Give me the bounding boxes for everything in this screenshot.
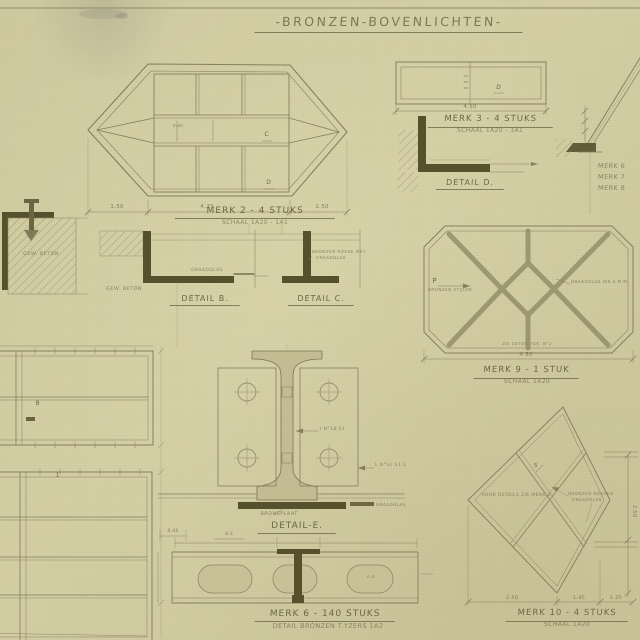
merk10-label: MERK 10 - 4 STUKS [506,609,629,622]
merk3-dim: 4.50 [450,104,490,110]
detail-c-note-2: DRAADGLAS [316,256,360,261]
detail-e-plate-note: BRONSPLAAT [244,512,314,518]
merk6-label: MERK 6 - 140 STUKS [255,609,396,622]
detail-e-label: DETAIL-E. [258,521,337,534]
merk9-scale: SCHAAL 1A20 [488,379,566,386]
merk10-dim-1: 2.50 [497,596,527,602]
detail-c-label: DETAIL C. [288,294,355,306]
merk9-note-bottom: ZIE DETAIL TEK. N°2 [490,342,564,347]
merk2-dim-right: 1.50 [302,204,342,210]
merk6-oblong-note: R.4 [358,575,384,580]
merk2-scale: SCHAAL 1A20 - 1A1 [195,220,315,227]
merk2-mark-c: C [261,132,273,139]
sheet-title: -BRONZEN-BOVENLICHTEN- [255,15,524,33]
merk2-dim-left: 1.50 [97,204,137,210]
detail-e-dim-1: 0.45 [160,529,186,534]
merk10-dim-3: 1.25 [603,596,629,602]
merk10-dim-right: 2.50 [630,505,636,517]
detail-e-dim-2: 4.5 [218,532,240,537]
merk2-mark-d: D [263,180,275,187]
merk2-dim-mid: 4.25 [187,204,227,210]
merk6-tbar-strip [158,538,433,603]
detail-d-label: DETAIL D. [436,178,505,190]
plan-a-mark: B [32,401,44,408]
merk9-label: MERK 9 - 1 STUK [474,366,580,379]
detail-b-note-glas: DRAADGLAS [183,268,231,273]
detail-e-angle-note: L N°51.51.5 [375,463,417,468]
merk2-dim-small: 0.60 [168,124,188,129]
beton-block-section [2,199,88,294]
merk10-note-center: VOOR DETAILS ZIE MERK 2 [476,493,556,498]
merk2-hexagon-plan [85,64,350,216]
corner-note-3: MERK 8 [598,185,640,192]
detail-b-label: DETAIL B. [170,294,241,306]
beton-label: GEW. BETON [12,252,70,258]
merk10-mark: 5 [530,463,542,469]
corner-note-2: MERK 7 [598,174,640,181]
drawing-sheet: -BRONZEN-BOVENLICHTEN- MERK 2 - 4 STUKS … [0,0,640,640]
left-plan-a [0,346,153,448]
merk9-mark: P [429,277,441,285]
detail-e-beam-note: I N°18-51 [320,427,366,432]
plan-b-mark: 1 [52,473,64,480]
detail-b-note-beton: GEW. BETON [100,287,148,293]
left-plan-b [0,346,164,640]
blueprint-linework [0,0,640,640]
merk3-mark: D [493,85,505,92]
merk6-sublabel: DETAIL BRONZEN T.YZERS 1A2 [248,623,408,630]
merk3-scale: SCHAAL 1A20 - 1A1 [440,128,540,135]
merk10-scale: SCHAAL 1A20 [528,622,606,629]
merk9-note-left: BRONZEN STIJLEN [428,288,486,293]
merk10-note-right-2: DRAADGLAS [572,498,618,503]
merk10-diamond-plan [465,407,638,606]
merk9-note-right: DRAADGLAS DIK 6 M.M [571,280,633,285]
ibeam-profile [252,351,322,500]
detail-e-glas-note: DRAADGLAS [376,503,422,508]
corner-note-1: MERK 6 [598,163,640,170]
merk3-label: MERK 3 - 4 STUKS [428,115,554,128]
merk10-dim-2: 1.45 [564,596,594,602]
merk9-dim: 4.50 [508,352,544,358]
